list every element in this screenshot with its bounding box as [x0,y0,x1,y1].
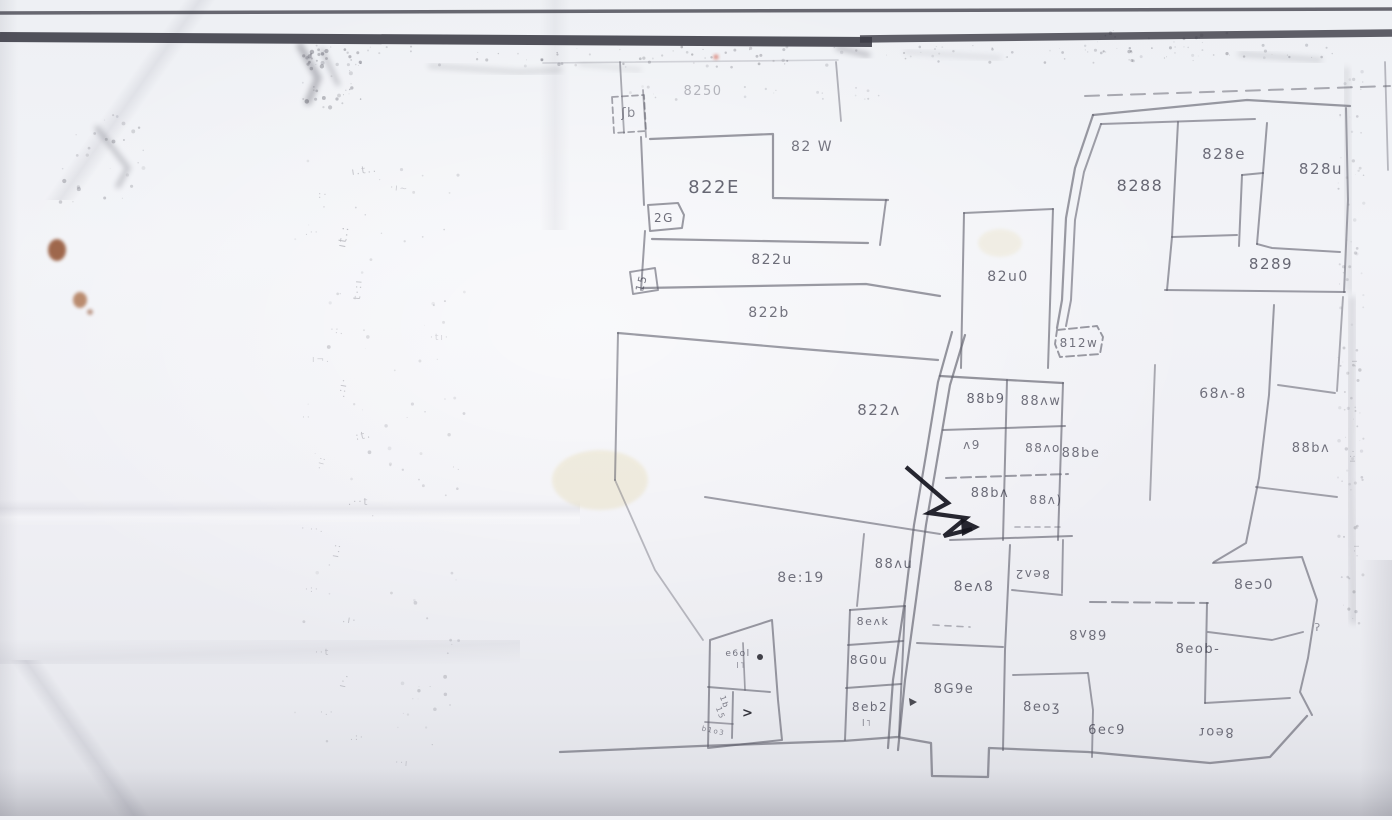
stain-mark [73,292,87,308]
ghost-fragment: .:· [350,733,365,743]
boundary-line [708,687,770,692]
ghost-fragment: :t. [355,429,373,443]
boundary-line [620,62,624,133]
boundary-line [946,474,1068,478]
boundary-line [1012,590,1062,595]
ghost-fragment: ·· [302,413,312,423]
plot-number: 822b [748,305,790,321]
plot-number: 8eʌk [857,615,890,628]
plot-number: 88b9 [966,392,1005,407]
ghost-fragment: t·:ı [352,278,365,300]
plot-number: 822u [751,252,793,268]
plot-number: 812w [1060,336,1099,350]
plot-number-labels: ʃb825082 W822E2G15822u822b82u0812w828882… [620,84,1343,739]
boundary-line [1062,540,1063,593]
boundary-line [1088,673,1093,757]
plot-number: 88ʌu [875,557,913,572]
boundary-line [943,426,1065,430]
plot-boundaries [543,60,1390,777]
plot-number: 15 [633,273,650,293]
pen-tick: > [742,706,753,721]
ghost-fragment: ı.t.. [351,163,379,178]
boundary-line [950,536,1072,540]
boundary-line [560,716,1307,777]
boundary-line [643,284,940,296]
ghost-fragment: .·· [305,228,320,238]
toner-smudge [580,64,640,70]
boundary-line [1167,122,1178,290]
plot-number: 828e [1202,145,1246,163]
ghost-fragment: ı·. [337,672,351,689]
ghost-fragment: ı· [1349,360,1359,369]
boundary-line [1239,175,1242,246]
boundary-line [1242,173,1263,175]
speckle-noise [59,114,146,204]
ghost-text-noise: ı.t..:··ı~ıt.:.··t·:ı·:.ı¬..:ı···:t.·ı:.… [302,163,1361,769]
boundary-line [1257,244,1340,252]
ghost-fragment: ··ı [395,758,410,769]
ghost-fragment: :· [318,190,329,201]
plot-number: 8eoɾ [1196,724,1233,739]
stain-mark [48,239,66,261]
boundary-line [1090,602,1208,603]
ghost-fragment: ·:. [329,325,345,337]
boundary-line [964,209,1053,213]
ghost-fragment: ıt.: [335,224,352,248]
boundary-line [543,60,838,63]
stain-mark [714,55,719,60]
plot-number: 88bʌ [971,486,1010,501]
boundary-line [1278,385,1335,393]
toner-smudge [430,66,560,72]
plot-number: ʌ9 [963,438,981,452]
boundary-line [1205,698,1290,703]
boundary-line [1214,305,1274,562]
boundary-line [1093,100,1350,115]
scanned-cadastral-map-page: { "document": { "kind": "scanned cadastr… [0,0,1392,816]
plot-number: 822E [688,177,740,198]
plot-number: 8289 [1249,255,1293,273]
plot-number: 8250 [683,84,722,99]
plot-number: 88ʌw [1021,394,1062,409]
plot-number: ʃb [620,106,637,121]
boundary-line [1165,290,1345,292]
boundary-line [732,692,733,738]
boundary-line [1208,632,1303,640]
boundary-line [1257,173,1263,244]
boundary-line [618,333,938,360]
toner-smudge [97,128,128,186]
ghost-fragment: ·:· [305,585,320,595]
boundary-line [1263,123,1267,173]
boundary-line [1256,487,1337,497]
ghost-fragment: ı.: [330,542,343,559]
plot-number: 8eʌ8 [954,579,995,595]
boundary-line [857,534,864,606]
stain-mark [87,309,93,315]
boundary-line [1172,235,1237,237]
boundary-line [641,137,644,205]
plot-number: 8eɔ0 [1234,577,1274,593]
pen-arrow-head [961,518,980,536]
boundary-line [1013,673,1087,675]
ghost-fragment: .:ı· [336,376,350,398]
speckle-noise [629,85,880,101]
boundary-line [845,610,850,740]
boundary-line [1003,545,1010,750]
plot-number: 828u [1299,160,1343,178]
ghost-fragment: ··t [315,648,330,658]
plot-number: 8e:19 [777,570,825,586]
ghost-fragment: ·tı· [430,333,450,343]
boundary-line [652,239,868,243]
plot-number: 88bʌ [1292,441,1331,456]
boundary-line [705,497,940,534]
stain-mark [552,450,648,510]
plot-number: 68ʌ8 [1068,626,1107,641]
plot-number: b1o3 [701,725,726,738]
ghost-fragment: ·.· [320,708,335,718]
ghost-fragment: .··t [348,497,369,508]
plot-number: 6ec9 [1088,723,1126,738]
cadastral-map-canvas: ʃb825082 W822E2G15822u822b82u0812w828882… [0,0,1392,816]
boundary-line [933,625,970,627]
ghost-fragment: ı¬. [312,355,331,365]
ghost-fragment: ·. [452,463,462,473]
scan-band [0,9,1392,13]
plot-number: 822ʌ [857,401,901,419]
boundary-line [1048,209,1053,368]
plot-number: 8288 [1117,176,1164,195]
boundary-line [1385,62,1388,170]
plot-number: ʔ [1314,621,1321,634]
boundary-line [848,641,903,645]
pen-small-triangle [909,698,917,706]
boundary-line [880,200,886,245]
boundary-line [1337,297,1343,391]
plot-number: 88ʌ) [1029,493,1062,507]
boundary-line [1066,124,1101,326]
plot-number: e6ol [725,649,750,659]
plot-number: 8eʌ2 [1014,567,1050,581]
stain-mark [978,229,1022,257]
boundary-line [1150,365,1155,500]
ghost-fragment: .ı· [342,614,359,627]
plot-number: 8eoʒ [1023,700,1061,715]
plot-number: 68ʌ-8 [1199,386,1247,402]
pen-dot [757,654,763,660]
boundary-line [940,376,1063,383]
plot-number: 8G0u [850,653,888,667]
plot-number: 8eob- [1176,642,1221,657]
plot-number: 2G [654,211,674,225]
boundary-line [836,62,841,121]
ghost-fragment: ·:ı [1347,450,1357,464]
plot-number: 8G9e [934,682,975,697]
map-svg: ʃb825082 W822E2G15822u822b82u0812w828882… [0,0,1392,816]
scan-band [0,37,872,42]
boundary-line [650,134,888,200]
plot-number: 82 W [791,139,833,155]
plot-number: 82u0 [987,269,1029,285]
toner-smudge [1240,54,1320,60]
scan-band [860,33,1392,39]
plot-number: l˥ [862,719,872,729]
boundary-line [917,643,1003,647]
ghost-fragment: ··. [310,525,325,535]
toner-smudge [905,52,1000,58]
plot-number: 88be [1062,446,1101,461]
plot-number: l˥ [736,661,745,670]
toner-smudge [322,50,338,84]
boundary-line [850,606,905,610]
ghost-fragment: ·ı~ [390,183,410,195]
ghost-fragment: ·ı: [315,454,328,471]
plot-number: 8eb2 [852,700,888,714]
ghost-fragment: ı.· [1351,545,1361,559]
plot-number: 88ʌo [1025,441,1061,455]
